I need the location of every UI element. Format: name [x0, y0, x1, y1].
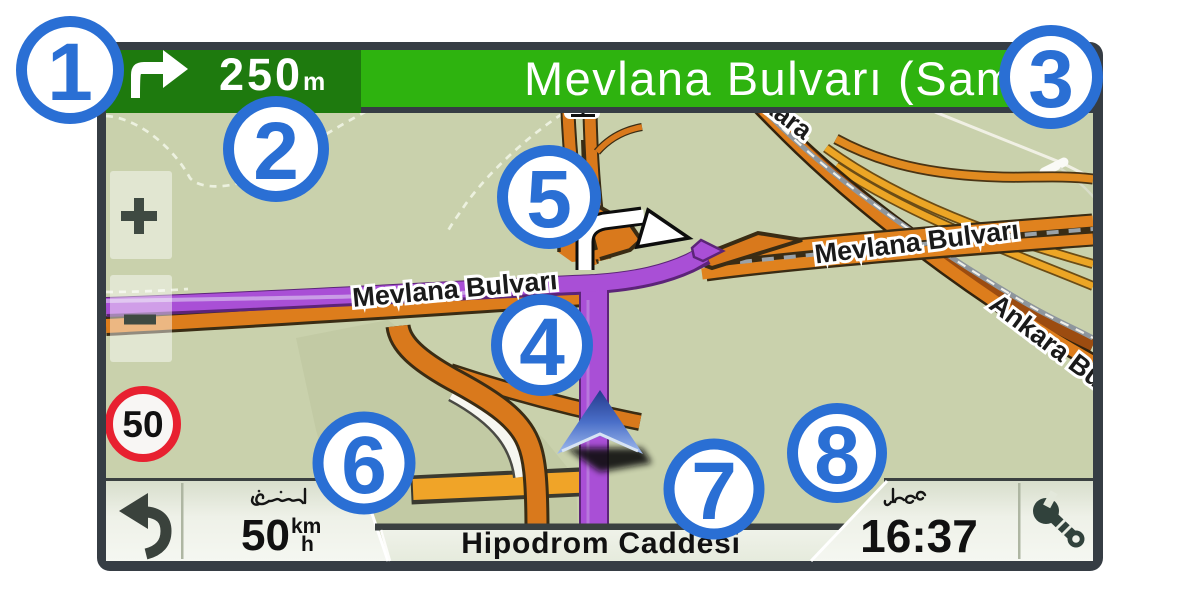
svg-text:m: m	[303, 68, 325, 96]
svg-text:50: 50	[122, 404, 163, 445]
svg-text:1: 1	[47, 27, 93, 118]
svg-text:5: 5	[526, 154, 572, 245]
svg-text:8: 8	[814, 410, 860, 501]
svg-text:50: 50	[241, 511, 290, 560]
svg-text:250: 250	[219, 49, 303, 100]
svg-text:6: 6	[341, 420, 387, 511]
svg-text:16:37: 16:37	[860, 510, 978, 562]
svg-text:h: h	[301, 533, 314, 556]
svg-text:Mevlana Bulvarı (Sam: Mevlana Bulvarı (Sam	[524, 52, 1016, 105]
svg-text:2: 2	[253, 106, 299, 197]
svg-text:7: 7	[691, 446, 737, 537]
svg-text:3: 3	[1028, 34, 1074, 125]
svg-text:4: 4	[519, 302, 565, 393]
